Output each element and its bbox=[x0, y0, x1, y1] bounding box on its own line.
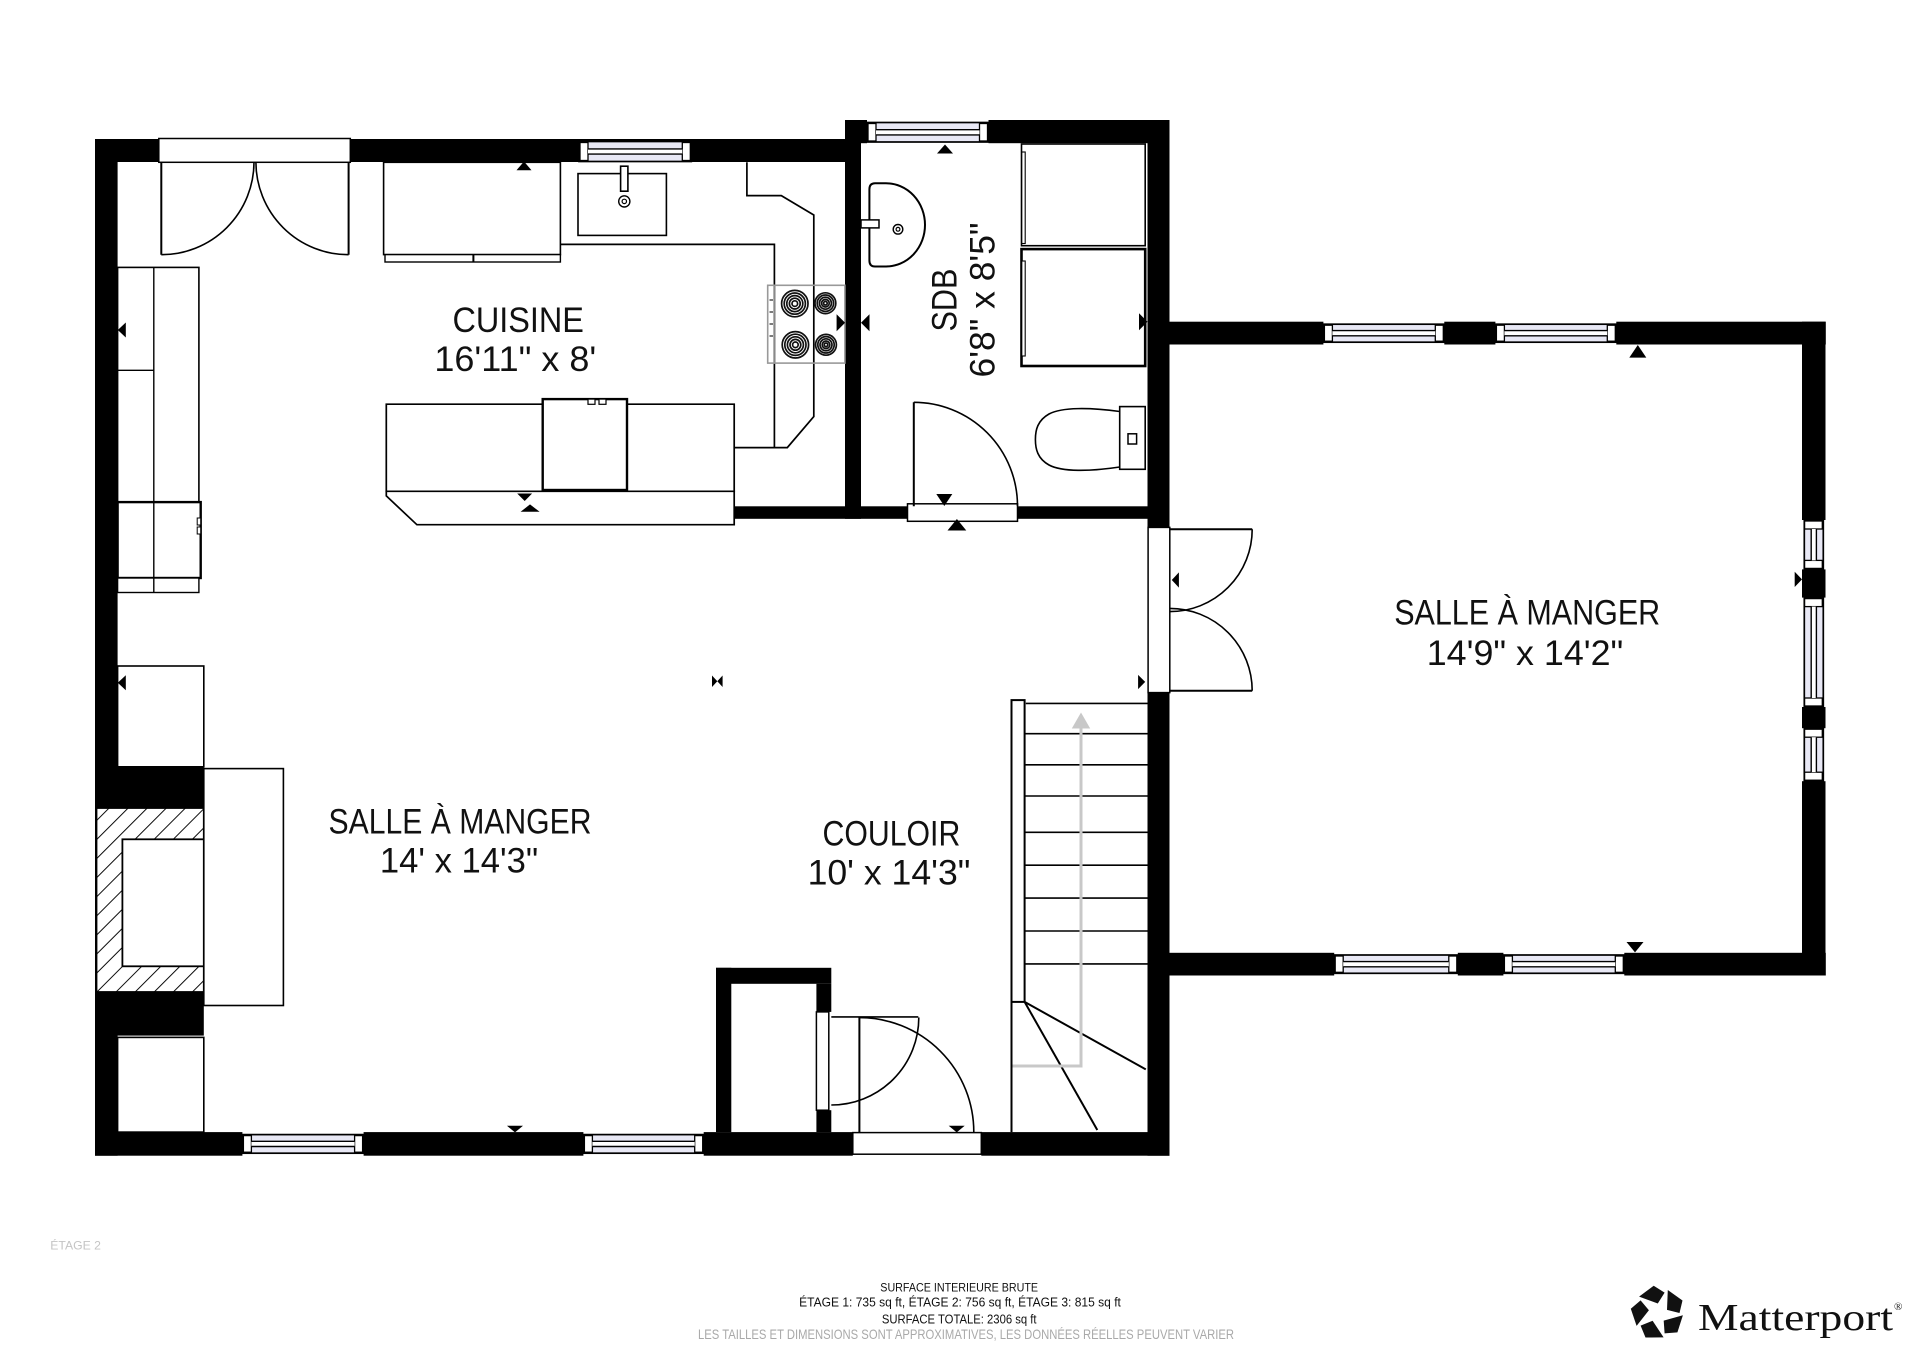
svg-text:SALLE À MANGER: SALLE À MANGER bbox=[329, 803, 592, 842]
svg-text:14' x 14'3": 14' x 14'3" bbox=[380, 842, 538, 881]
svg-text:SURFACE INTERIEURE BRUTE: SURFACE INTERIEURE BRUTE bbox=[880, 1280, 1038, 1294]
svg-text:ÉTAGE 2: ÉTAGE 2 bbox=[50, 1238, 101, 1253]
svg-text:14'9" x 14'2": 14'9" x 14'2" bbox=[1427, 634, 1624, 673]
svg-text:®: ® bbox=[1894, 1301, 1902, 1313]
svg-text:CUISINE: CUISINE bbox=[452, 301, 584, 340]
svg-text:6'8" x 8'5": 6'8" x 8'5" bbox=[964, 223, 1003, 378]
svg-text:SDB: SDB bbox=[926, 269, 965, 332]
svg-text:COULOIR: COULOIR bbox=[823, 815, 961, 854]
svg-text:LES TAILLES ET DIMENSIONS SONT: LES TAILLES ET DIMENSIONS SONT APPROXIMA… bbox=[698, 1326, 1234, 1342]
svg-text:ÉTAGE 1: 735 sq ft, ÉTAGE 2: 7: ÉTAGE 1: 735 sq ft, ÉTAGE 2: 756 sq ft, … bbox=[799, 1295, 1121, 1310]
svg-text:16'11" x 8': 16'11" x 8' bbox=[434, 340, 596, 379]
svg-text:SURFACE TOTALE: 2306 sq ft: SURFACE TOTALE: 2306 sq ft bbox=[882, 1313, 1037, 1327]
svg-text:Matterport: Matterport bbox=[1698, 1297, 1894, 1339]
svg-text:SALLE À MANGER: SALLE À MANGER bbox=[1394, 594, 1660, 633]
svg-text:10' x 14'3": 10' x 14'3" bbox=[808, 854, 971, 893]
